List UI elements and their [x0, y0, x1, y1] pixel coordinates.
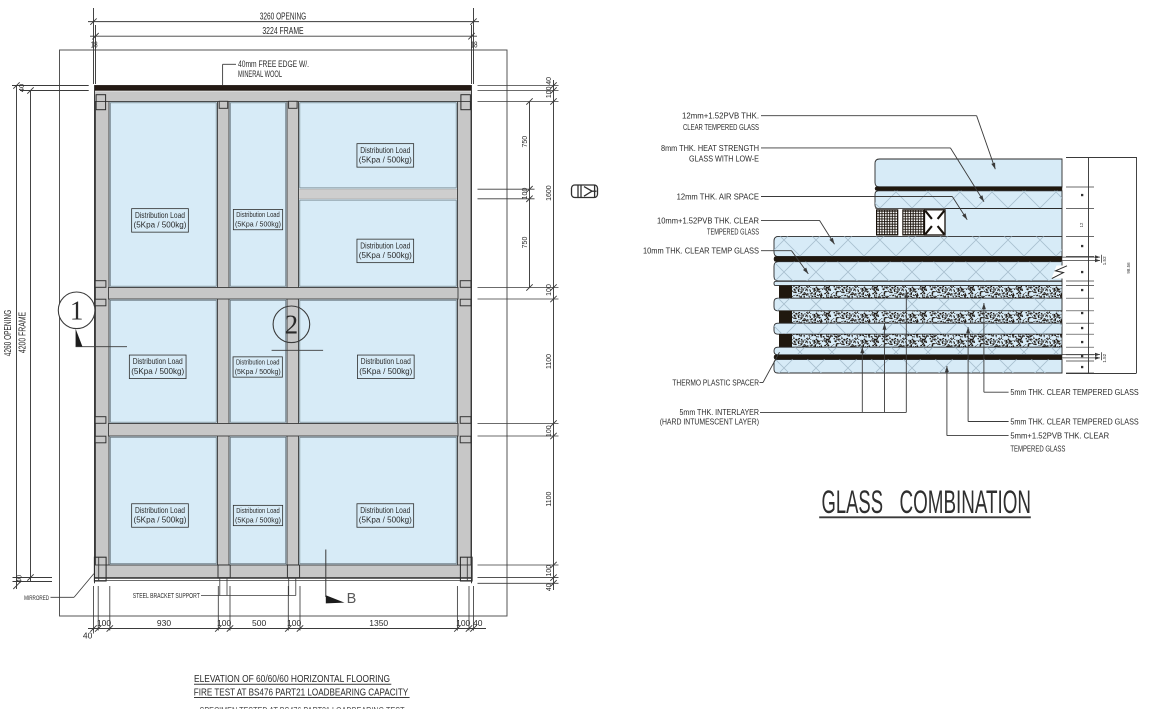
- svg-text:2: 2: [285, 310, 299, 340]
- svg-text:(5Kpa / 500kg): (5Kpa / 500kg): [359, 251, 412, 260]
- svg-text:Distribution Load: Distribution Load: [236, 506, 280, 515]
- svg-text:12mm+1.52PVB THK.: 12mm+1.52PVB THK.: [682, 111, 759, 121]
- svg-text:Distribution Load: Distribution Load: [236, 357, 280, 366]
- svg-text:(5Kpa / 500kg): (5Kpa / 500kg): [359, 367, 412, 376]
- svg-text:40: 40: [546, 583, 553, 591]
- svg-text:Distribution Load: Distribution Load: [360, 241, 410, 250]
- svg-text:1.52: 1.52: [1102, 353, 1107, 362]
- svg-text:TEMPERED GLASS: TEMPERED GLASS: [1010, 444, 1065, 454]
- svg-text:40: 40: [17, 84, 26, 92]
- svg-text:40: 40: [15, 575, 24, 583]
- svg-text:12: 12: [1079, 222, 1084, 227]
- svg-text:Distribution Load: Distribution Load: [133, 357, 183, 366]
- svg-text:(5Kpa / 500kg): (5Kpa / 500kg): [134, 516, 187, 525]
- svg-text:Distribution Load: Distribution Load: [135, 506, 185, 515]
- svg-text:100: 100: [546, 284, 553, 296]
- svg-text:(5Kpa / 500kg): (5Kpa / 500kg): [131, 367, 184, 376]
- svg-text:SPECIMEN TESTED AT BS476 PART2: SPECIMEN TESTED AT BS476 PART21 LOADBEAR…: [200, 705, 405, 709]
- svg-text:Distribution Load: Distribution Load: [135, 211, 185, 220]
- svg-text:(5Kpa / 500kg): (5Kpa / 500kg): [359, 516, 412, 525]
- svg-text:8mm THK. HEAT STRENGTH: 8mm THK. HEAT STRENGTH: [661, 143, 759, 153]
- svg-text:(HARD INTUMESCENT LAYER): (HARD INTUMESCENT LAYER): [660, 416, 759, 426]
- svg-text:40: 40: [473, 618, 483, 628]
- svg-text:100: 100: [546, 425, 553, 437]
- svg-text:1: 1: [70, 296, 84, 326]
- svg-text:(5Kpa / 500kg): (5Kpa / 500kg): [359, 156, 412, 165]
- svg-text:5mm THK. CLEAR TEMPERED GLASS: 5mm THK. CLEAR TEMPERED GLASS: [1010, 416, 1139, 426]
- svg-text:COMBINATION: COMBINATION: [900, 484, 1032, 520]
- svg-text:GLASS: GLASS: [822, 484, 884, 520]
- svg-text:B: B: [347, 591, 357, 607]
- svg-text:5mm+1.52PVB THK. CLEAR: 5mm+1.52PVB THK. CLEAR: [1010, 431, 1109, 441]
- svg-text:18: 18: [91, 41, 98, 50]
- svg-text:40: 40: [546, 77, 553, 85]
- svg-text:10mm THK. CLEAR TEMP GLASS: 10mm THK. CLEAR TEMP GLASS: [643, 246, 759, 256]
- svg-text:1100: 1100: [546, 491, 553, 506]
- svg-text:1350: 1350: [369, 618, 388, 628]
- svg-text:ELEVATION OF 60/60/60 HORIZONT: ELEVATION OF 60/60/60 HORIZONTAL FLOORIN…: [194, 673, 390, 685]
- svg-text:(5Kpa / 500kg): (5Kpa / 500kg): [235, 516, 281, 525]
- svg-text:100: 100: [522, 188, 529, 200]
- svg-text:98.56: 98.56: [1126, 262, 1131, 274]
- svg-text:500: 500: [252, 618, 266, 628]
- svg-text:5mm THK. CLEAR TEMPERED GLASS: 5mm THK. CLEAR TEMPERED GLASS: [1010, 387, 1139, 397]
- svg-text:Distribution Load: Distribution Load: [360, 146, 410, 155]
- svg-text:100: 100: [217, 618, 231, 628]
- svg-text:GLASS WITH LOW-E: GLASS WITH LOW-E: [689, 154, 759, 164]
- svg-text:100: 100: [287, 618, 301, 628]
- svg-text:930: 930: [157, 618, 171, 628]
- svg-text:Distribution Load: Distribution Load: [236, 210, 280, 219]
- svg-text:MINERAL WOOL: MINERAL WOOL: [238, 69, 282, 79]
- svg-text:TEMPERED GLASS: TEMPERED GLASS: [707, 227, 759, 237]
- svg-text:(5Kpa / 500kg): (5Kpa / 500kg): [235, 367, 281, 376]
- svg-text:1600: 1600: [546, 185, 553, 201]
- svg-text:100: 100: [97, 618, 111, 628]
- svg-text:4260 OPENING: 4260 OPENING: [3, 310, 14, 357]
- svg-text:THERMO PLASTIC SPACER: THERMO PLASTIC SPACER: [672, 377, 759, 387]
- svg-text:750: 750: [522, 136, 529, 148]
- svg-text:18: 18: [471, 41, 478, 50]
- svg-text:10mm+1.52PVB THK. CLEAR: 10mm+1.52PVB THK. CLEAR: [657, 215, 759, 225]
- svg-text:100: 100: [546, 565, 553, 577]
- svg-text:40: 40: [83, 631, 93, 641]
- svg-text:Distribution Load: Distribution Load: [360, 506, 410, 515]
- svg-text:FIRE TEST AT BS476 PART21 LOAD: FIRE TEST AT BS476 PART21 LOADBEARING CA…: [194, 686, 409, 698]
- svg-text:MIRRORED: MIRRORED: [24, 595, 49, 602]
- svg-text:CLEAR TEMPERED GLASS: CLEAR TEMPERED GLASS: [683, 122, 759, 132]
- svg-text:Distribution Load: Distribution Load: [361, 357, 411, 366]
- svg-text:4200 FRAME: 4200 FRAME: [18, 312, 29, 354]
- svg-text:100: 100: [546, 86, 553, 98]
- svg-text:1100: 1100: [546, 354, 553, 369]
- svg-text:3224 FRAME: 3224 FRAME: [262, 26, 304, 37]
- svg-text:12mm THK. AIR SPACE: 12mm THK. AIR SPACE: [677, 191, 760, 201]
- svg-text:STEEL BRACKET SUPPORT: STEEL BRACKET SUPPORT: [133, 593, 201, 600]
- svg-text:100: 100: [456, 618, 470, 628]
- svg-text:(5Kpa / 500kg): (5Kpa / 500kg): [134, 221, 187, 230]
- svg-text:3260 OPENING: 3260 OPENING: [260, 11, 307, 22]
- svg-text:1.52: 1.52: [1102, 256, 1107, 265]
- svg-text:750: 750: [522, 237, 529, 249]
- svg-text:(5Kpa / 500kg): (5Kpa / 500kg): [235, 220, 281, 229]
- svg-text:40mm FREE EDGE W/.: 40mm FREE EDGE W/.: [238, 59, 309, 69]
